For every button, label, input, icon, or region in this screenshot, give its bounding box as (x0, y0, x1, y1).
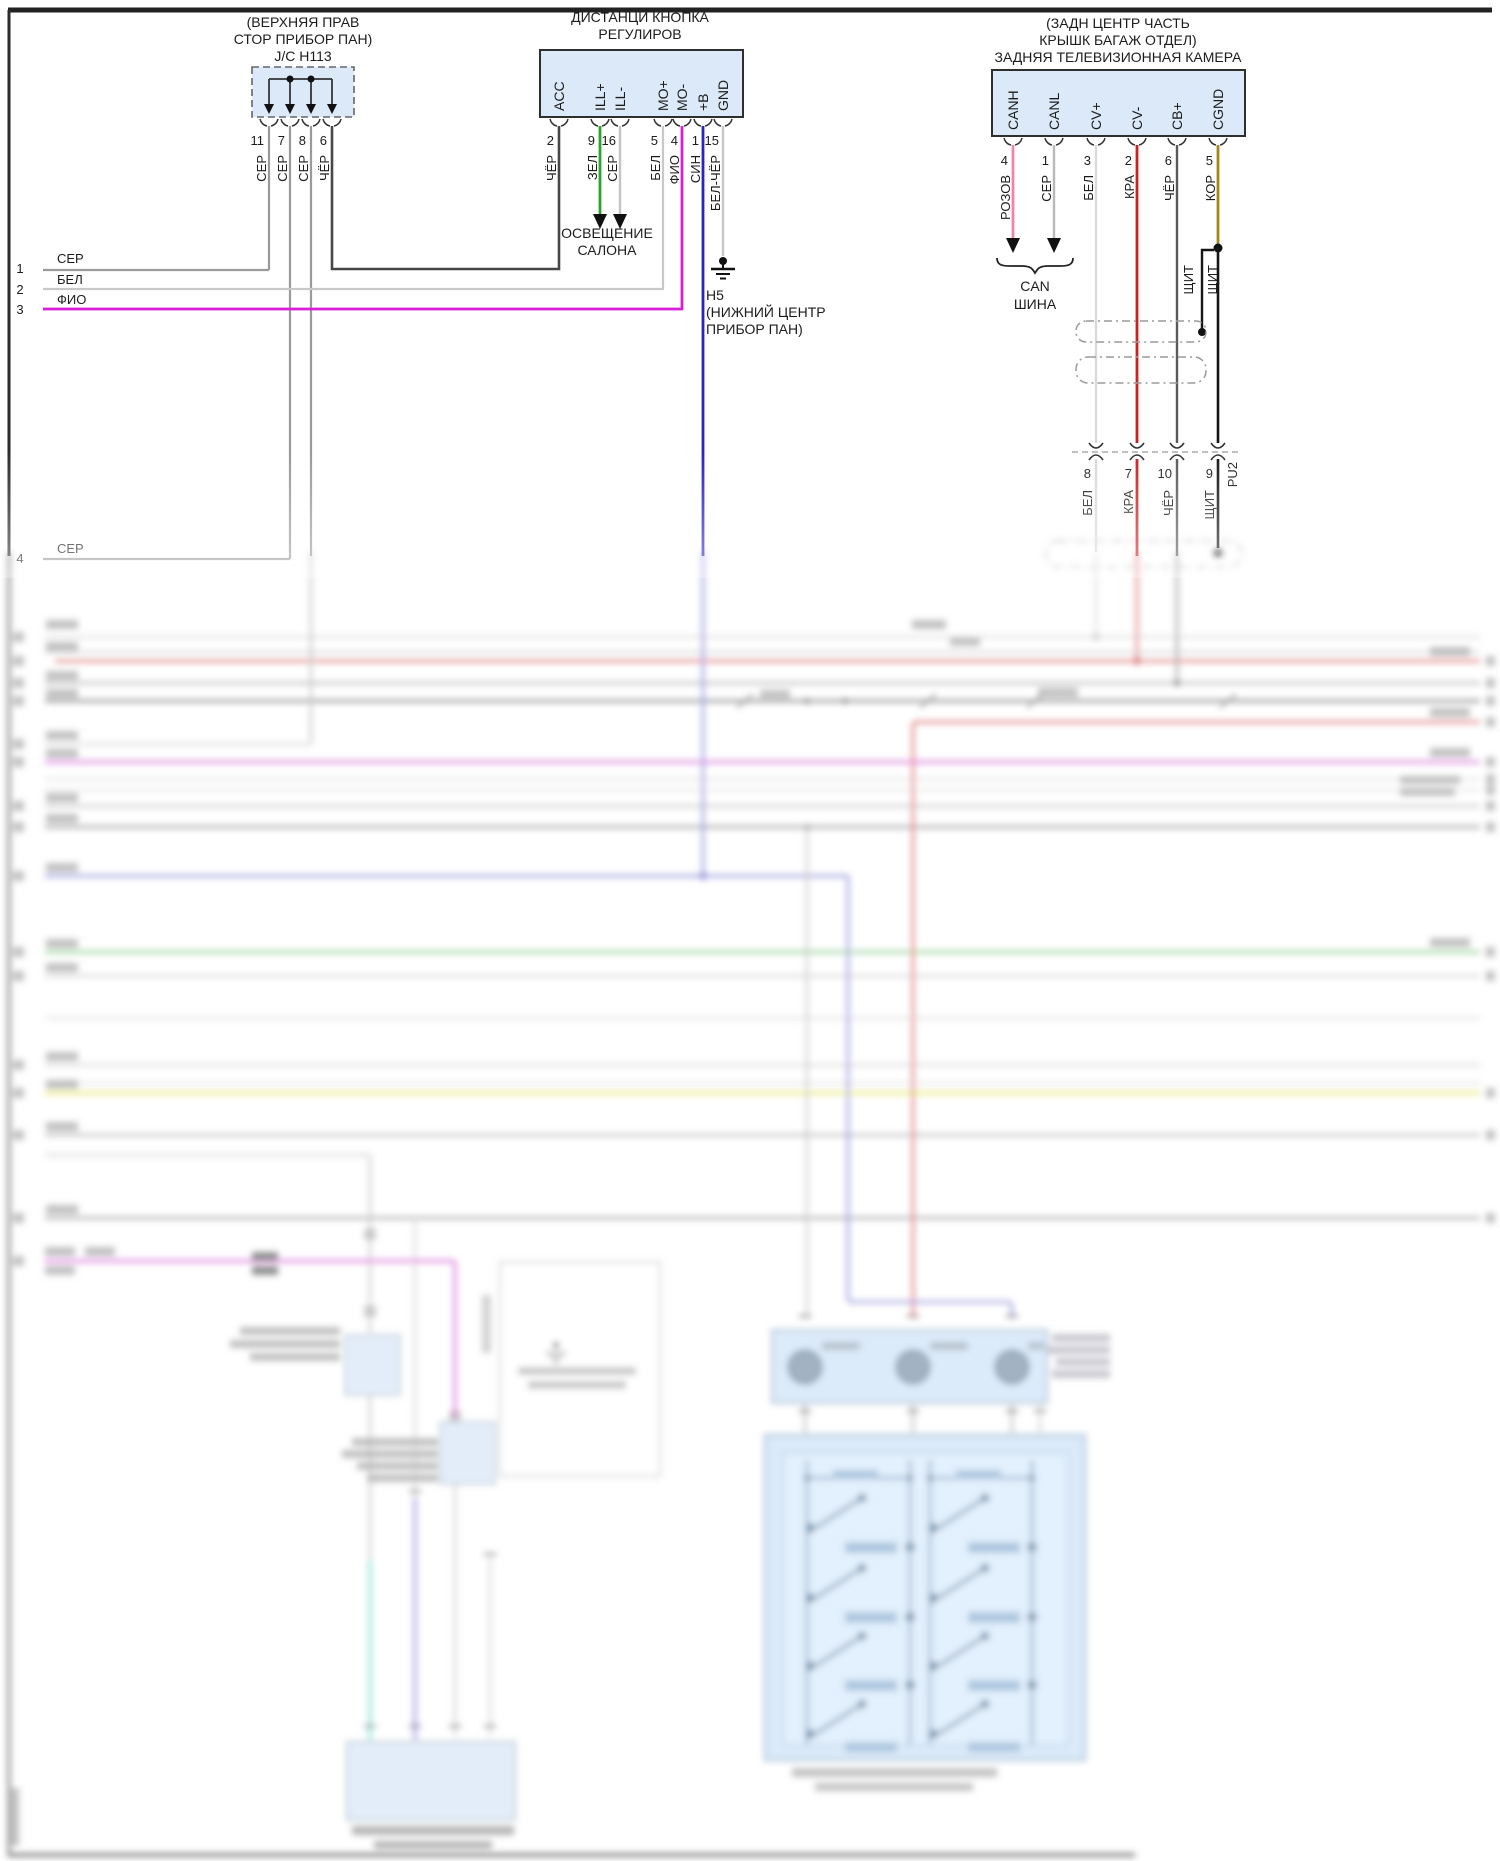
canh-arrow (1006, 238, 1020, 253)
jc-pin2-num: 7 (278, 133, 285, 148)
remote-title-line2: РЕГУЛИРОВ (598, 26, 681, 42)
remote-wire-fio: ФИО (667, 155, 682, 184)
wiring-diagram-canvas: (ВЕРХНЯЯ ПРАВ СТОР ПРИБОР ПАН) J/C H113 … (0, 0, 1500, 1861)
remote-pin-gnd: GND (715, 80, 731, 111)
camera-num-4: 4 (1001, 153, 1008, 168)
can-bus-label1: CAN (1020, 278, 1050, 294)
camera-title-line2: КРЫШК БАГАЖ ОТДЕЛ) (1039, 32, 1196, 48)
can-bus-label2: ШИНА (1014, 296, 1057, 312)
remote-title-line1: ДИСТАНЦИ КНОПКА (571, 9, 709, 25)
camera-num-2: 2 (1125, 153, 1132, 168)
camera-title-line1: (ЗАДН ЦЕНТР ЧАСТЬ (1046, 15, 1190, 31)
remote-wire-bel: БЕЛ (648, 155, 663, 181)
remote-pin-acc: ACC (551, 81, 567, 111)
camera-box (992, 70, 1245, 136)
camera-pin-cgnd: CGND (1210, 89, 1226, 130)
jc-pin4-wire: ЧЁР (317, 155, 332, 181)
row1-wire-label: СЕР (57, 251, 84, 266)
remote-num-2: 2 (547, 133, 554, 148)
camera-num-5: 5 (1206, 153, 1213, 168)
remote-wire-ser: СЕР (605, 155, 620, 182)
jc-pin1-wire: СЕР (254, 155, 269, 182)
remote-num-9: 9 (588, 133, 595, 148)
left-row-2: 2 БЕЛ (16, 126, 663, 297)
ground-name: H5 (706, 287, 724, 303)
camera-num-1: 1 (1042, 153, 1049, 168)
remote-num-5: 5 (651, 133, 658, 148)
interior-light-label1: ОСВЕЩЕНИЕ (561, 225, 653, 241)
camera-title-line3: ЗАДНЯЯ ТЕЛЕВИЗИОННАЯ КАМЕРА (995, 49, 1243, 65)
camera-wire-rozov: РОЗОВ (998, 175, 1013, 220)
jc-pin-cups (260, 119, 341, 126)
camera-pin-cvp: CV+ (1088, 102, 1104, 130)
camera-wire-kor: КОР (1203, 175, 1218, 201)
remote-pin-cups (550, 119, 732, 126)
camera-pin-canh: CANH (1005, 90, 1021, 130)
row1-num: 1 (16, 261, 23, 276)
remote-pin-mom: MO- (674, 83, 690, 111)
remote-num-4: 4 (671, 133, 678, 148)
camera-pin-cbp: CB+ (1169, 102, 1185, 130)
remote-box (540, 50, 743, 117)
camera-num-6: 6 (1165, 153, 1172, 168)
row2-wire-label: БЕЛ (57, 272, 83, 287)
jc-pin4-num: 6 (320, 133, 327, 148)
row3-wire-label: ФИО (57, 292, 86, 307)
camera-wire-kra: КРА (1122, 175, 1137, 199)
camera-pin-cvm: CV- (1129, 106, 1145, 130)
jc-pin2-wire: СЕР (275, 155, 290, 182)
shield-label-1: ЩИТ (1181, 265, 1196, 295)
shield-branch-dot (1198, 328, 1206, 336)
row3-wire (43, 126, 682, 309)
jc-pin1-num: 11 (251, 133, 265, 148)
camera-wire-ser: СЕР (1039, 175, 1054, 202)
remote-num-15: 15 (705, 133, 719, 148)
remote-pin-mop: MO+ (655, 80, 671, 111)
row3-num: 3 (16, 302, 23, 317)
ground-loc2: ПРИБОР ПАН) (706, 321, 803, 337)
camera-wire-bel: БЕЛ (1081, 175, 1096, 201)
jc-title-line1: (ВЕРХНЯЯ ПРАВ (247, 14, 360, 30)
transition-haze (0, 452, 1500, 578)
camera-pin-cups (1004, 138, 1227, 145)
ground-loc1: (НИЖНИЙ ЦЕНТР (706, 303, 826, 320)
remote-pin-b: +B (695, 93, 711, 111)
remote-pin-illm: ILL- (612, 87, 628, 111)
remote-pin-illp: ILL+ (592, 83, 608, 111)
camera-pin-canl: CANL (1046, 92, 1062, 130)
remote-num-1: 1 (692, 133, 699, 148)
row2-wire (43, 126, 663, 289)
jc-title-line2: СТОР ПРИБОР ПАН) (234, 31, 372, 47)
left-row-1: 1 СЕР (16, 251, 269, 276)
remote-wire-sin: СИН (688, 155, 703, 183)
jc-pin3-wire: СЕР (296, 155, 311, 182)
jc-pin3-num: 8 (299, 133, 306, 148)
camera-num-3: 3 (1084, 153, 1091, 168)
shield-label-2: ЩИТ (1205, 265, 1220, 295)
can-brace (997, 258, 1073, 273)
remote-wire-belcher: БЕЛ-ЧЁР (708, 155, 723, 211)
wire-cher-acc (332, 126, 559, 269)
camera-wire-cher: ЧЁР (1162, 175, 1177, 201)
row2-num: 2 (16, 282, 23, 297)
wiring-diagram-page: (ВЕРХНЯЯ ПРАВ СТОР ПРИБОР ПАН) J/C H113 … (0, 0, 1500, 1861)
jc-title-line3: J/C H113 (274, 48, 332, 64)
ground-symbol-h5 (711, 257, 735, 279)
remote-num-16: 16 (602, 133, 616, 148)
canl-arrow (1047, 238, 1061, 253)
fade-veil (0, 578, 1500, 1861)
remote-wire-zel: ЗЕЛ (585, 155, 600, 180)
remote-wire-cher: ЧЁР (544, 155, 559, 181)
interior-light-label2: САЛОНА (578, 242, 638, 258)
